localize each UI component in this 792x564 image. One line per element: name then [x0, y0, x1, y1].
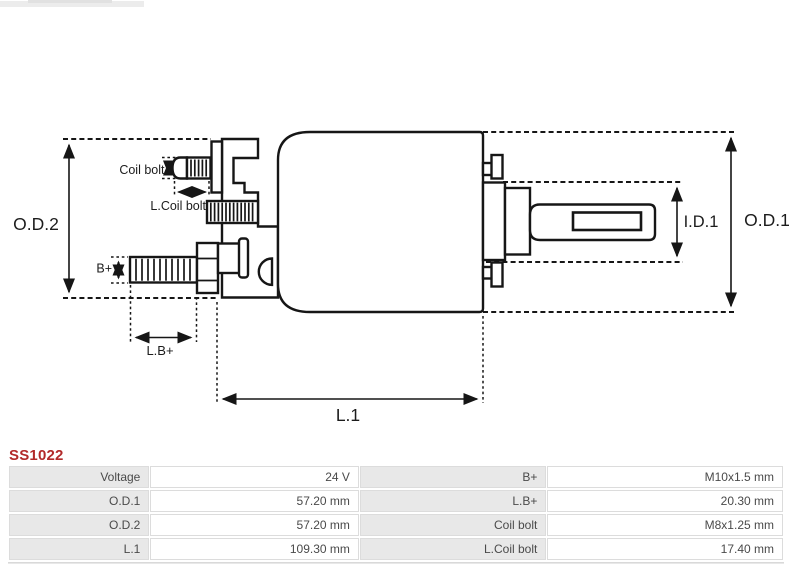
part-number-title: SS1022	[9, 447, 64, 464]
spec-value-cell: 109.30 mm	[150, 538, 359, 560]
table-row: O.D.2 57.20 mm Coil bolt M8x1.25 mm	[9, 514, 783, 536]
spec-label-cell: Coil bolt	[360, 514, 546, 536]
table-row: O.D.1 57.20 mm L.B+ 20.30 mm	[9, 490, 783, 512]
bplus-nut	[197, 243, 218, 293]
spec-value-cell: 57.20 mm	[150, 514, 359, 536]
spec-label-cell: O.D.2	[9, 514, 149, 536]
spec-value-cell: 24 V	[150, 466, 359, 488]
label-od1: O.D.1	[744, 210, 790, 230]
spec-value-cell: 17.40 mm	[547, 538, 783, 560]
terminal-plate	[212, 142, 223, 193]
spec-value-cell: 57.20 mm	[150, 490, 359, 512]
label-lbplus: L.B+	[146, 343, 173, 358]
label-coil-bolt: Coil bolt	[119, 163, 165, 177]
label-od2: O.D.2	[13, 214, 59, 234]
spec-label-cell: O.D.1	[9, 490, 149, 512]
terminal-tab-bottom	[483, 263, 503, 287]
spec-label-cell: B+	[360, 466, 546, 488]
label-bplus: B+	[96, 262, 112, 276]
spec-value-cell: M10x1.5 mm	[547, 466, 783, 488]
spec-table: Voltage 24 V B+ M10x1.5 mm O.D.1 57.20 m…	[8, 464, 784, 562]
coil-bolt-thread-bushing	[207, 201, 258, 223]
spec-label-cell: L.B+	[360, 490, 546, 512]
bplus-spacer	[218, 244, 240, 274]
coil-bolt	[173, 158, 211, 179]
table-row: L.1 109.30 mm L.Coil bolt 17.40 mm	[9, 538, 783, 560]
terminal-tab-top	[483, 155, 503, 179]
spec-label-cell: L.Coil bolt	[360, 538, 546, 560]
spec-value-cell: 20.30 mm	[547, 490, 783, 512]
spec-label-cell: Voltage	[9, 466, 149, 488]
spec-value-cell: M8x1.25 mm	[547, 514, 783, 536]
label-lcoil-bolt: L.Coil bolt	[150, 199, 206, 213]
label-l1: L.1	[336, 405, 360, 425]
solenoid-technical-drawing: O.D.2 Coil bolt L.Coil bolt B+ L.B+ L.1 …	[0, 0, 792, 446]
solenoid-outline	[130, 132, 655, 312]
spec-label-cell: L.1	[9, 538, 149, 560]
solenoid-body	[278, 132, 483, 312]
table-row: Voltage 24 V B+ M10x1.5 mm	[9, 466, 783, 488]
bplus-flange-disc	[239, 239, 248, 278]
plunger-slot	[573, 213, 641, 231]
product-spec-sheet: O.D.2 Coil bolt L.Coil bolt B+ L.B+ L.1 …	[0, 0, 792, 564]
label-id1: I.D.1	[684, 213, 719, 231]
plunger	[483, 183, 655, 261]
